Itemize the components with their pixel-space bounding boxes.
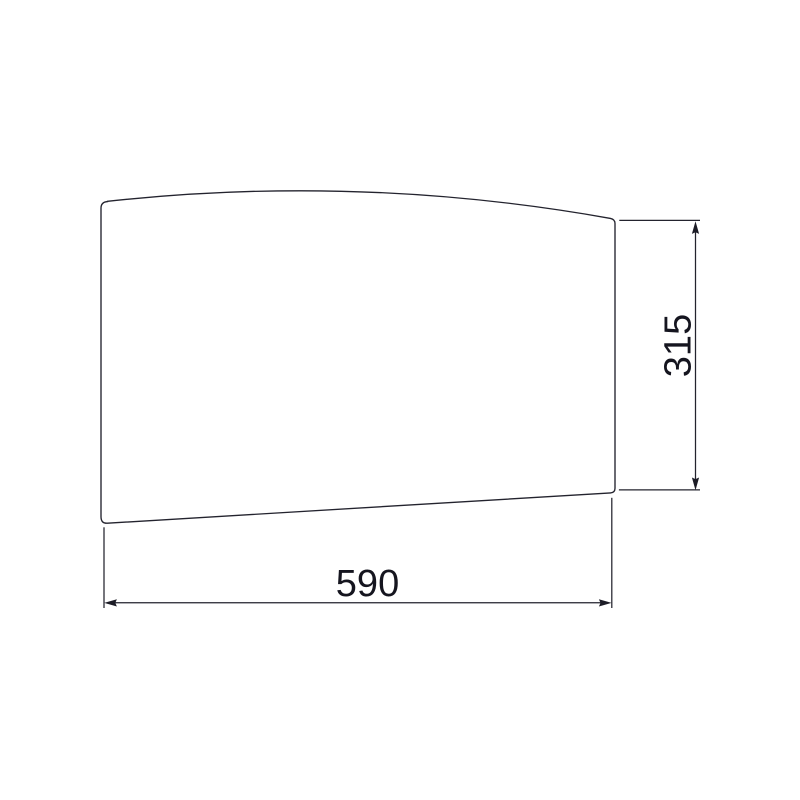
svg-text:315: 315 [658, 314, 700, 377]
svg-text:590: 590 [336, 563, 399, 605]
